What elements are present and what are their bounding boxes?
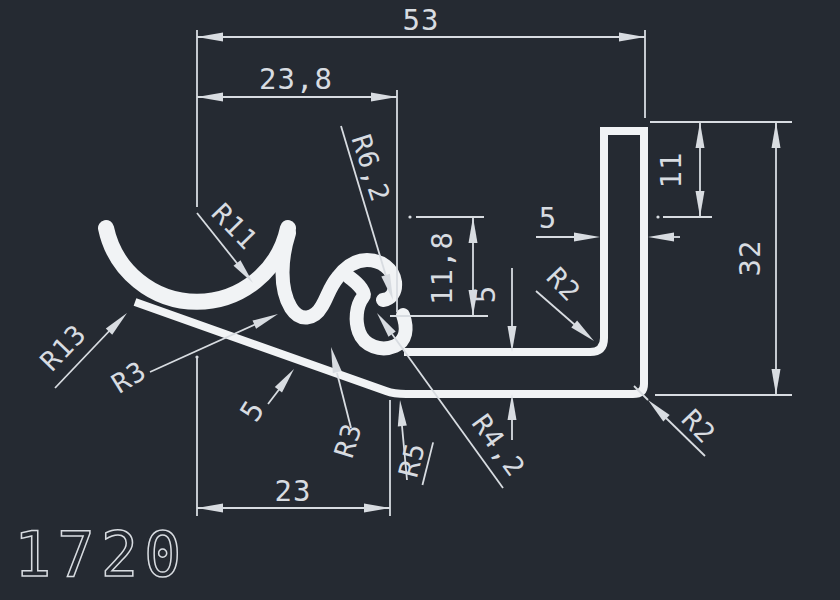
dim-hook-offset: 23,8 bbox=[259, 62, 333, 96]
ext-dot-left bbox=[195, 355, 198, 358]
drawing-background bbox=[0, 0, 840, 600]
cad-drawing-canvas: 53 23,8 23 11,8 5 11 32 5 5 R11 R13 R3 R… bbox=[0, 0, 840, 600]
dim-slot-depth: 11,8 bbox=[425, 231, 459, 305]
ext-dot-slot bbox=[408, 215, 411, 218]
ext-dot-leg bbox=[656, 215, 659, 218]
part-number: 1720 bbox=[14, 518, 187, 591]
dim-leg-height: 32 bbox=[733, 240, 767, 277]
dim-web-width: 23 bbox=[275, 474, 312, 508]
dim-leg-top-offset: 11 bbox=[654, 152, 688, 189]
dim-total-width: 53 bbox=[403, 3, 440, 37]
dim-mid-wall: 5 bbox=[468, 285, 502, 303]
dim-leg-width: 5 bbox=[539, 201, 557, 235]
